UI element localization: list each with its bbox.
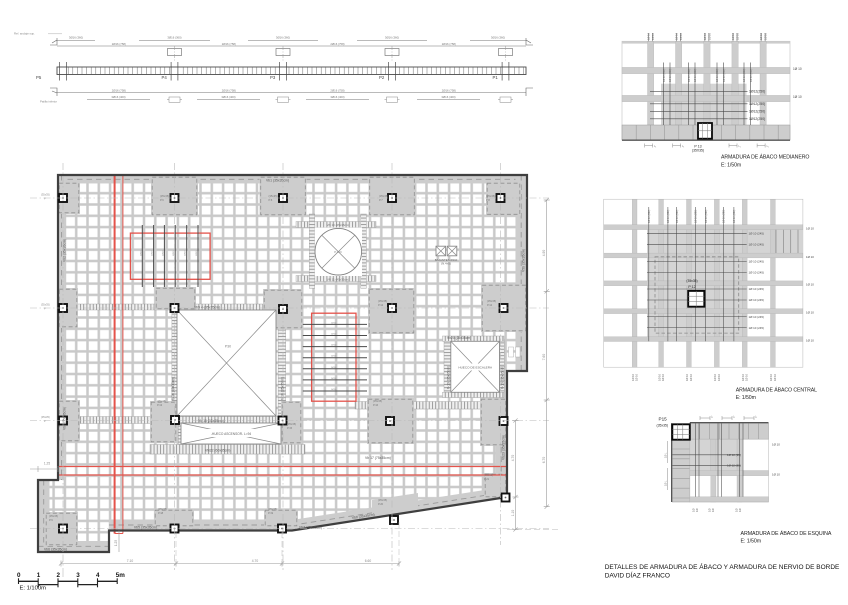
svg-text:1Ø 12 (95): 1Ø 12 (95) bbox=[727, 464, 741, 468]
svg-text:1Ø 12 (95): 1Ø 12 (95) bbox=[727, 453, 741, 457]
svg-text:1Ø10: 1Ø10 bbox=[331, 367, 337, 369]
svg-text:3: 3 bbox=[76, 572, 80, 579]
svg-text:1Ø10: 1Ø10 bbox=[331, 389, 337, 391]
svg-text:1Ø 10: 1Ø 10 bbox=[793, 67, 802, 71]
svg-text:E: 1/100m: E: 1/100m bbox=[20, 585, 47, 591]
svg-text:3Ø16 (400): 3Ø16 (400) bbox=[111, 95, 125, 99]
svg-text:P.160: P.160 bbox=[334, 250, 342, 254]
svg-text:Ref. anclaje sup.: Ref. anclaje sup. bbox=[14, 32, 35, 36]
svg-text:1Ø 10 (250): 1Ø 10 (250) bbox=[723, 68, 726, 82]
svg-text:P.12: P.12 bbox=[487, 303, 493, 307]
svg-text:Vb 17 (75x35cm): Vb 17 (75x35cm) bbox=[365, 456, 391, 460]
svg-text:1.10: 1.10 bbox=[511, 510, 515, 517]
svg-text:(35x35): (35x35) bbox=[378, 498, 387, 502]
svg-text:1Ø 10 (280): 1Ø 10 (280) bbox=[723, 209, 726, 223]
svg-text:1Ø 10: 1Ø 10 bbox=[773, 373, 777, 381]
svg-text:1Ø 10: 1Ø 10 bbox=[772, 443, 780, 447]
svg-text:-HUECO ASCENSOR- L=94: -HUECO ASCENSOR- L=94 bbox=[211, 432, 252, 436]
svg-text:P.21: P.21 bbox=[484, 477, 490, 481]
svg-text:Vb6 (35x35cm): Vb6 (35x35cm) bbox=[44, 547, 67, 551]
svg-text:P.19: P.19 bbox=[268, 511, 274, 515]
svg-text:P15: P15 bbox=[659, 416, 668, 421]
svg-text:(35x35): (35x35) bbox=[486, 194, 495, 198]
svg-text:1Ø 10 (250): 1Ø 10 (250) bbox=[663, 68, 666, 82]
svg-text:L₁: L₁ bbox=[711, 417, 713, 419]
svg-text:(35x35): (35x35) bbox=[487, 299, 496, 303]
svg-text:P.20: P.20 bbox=[378, 502, 384, 506]
svg-text:1Ø 10: 1Ø 10 bbox=[685, 373, 689, 381]
svg-text:1Ø 10: 1Ø 10 bbox=[759, 32, 763, 40]
svg-text:1Ø 10: 1Ø 10 bbox=[793, 95, 802, 99]
svg-text:1Ø10: 1Ø10 bbox=[331, 378, 337, 380]
svg-text:P3: P3 bbox=[270, 75, 276, 80]
svg-text:2Ø16 (758): 2Ø16 (758) bbox=[330, 88, 344, 92]
svg-text:VN 11 (45x35cm): VN 11 (45x35cm) bbox=[327, 277, 349, 281]
svg-text:3Ø16 (360): 3Ø16 (360) bbox=[491, 36, 505, 40]
svg-text:1Ø: 1Ø bbox=[738, 509, 742, 512]
svg-text:7.10: 7.10 bbox=[127, 559, 134, 563]
svg-text:1Ø 10 (280): 1Ø 10 (280) bbox=[695, 209, 698, 223]
svg-text:1Ø 10 (280): 1Ø 10 (280) bbox=[676, 209, 679, 223]
svg-text:(35x35): (35x35) bbox=[157, 399, 166, 403]
svg-text:1Ø: 1Ø bbox=[692, 509, 696, 512]
svg-text:E: 1/50m: E: 1/50m bbox=[721, 162, 741, 168]
svg-text:1Ø 10 (245): 1Ø 10 (245) bbox=[749, 232, 764, 236]
svg-text:1Ø 10: 1Ø 10 bbox=[806, 338, 814, 342]
svg-text:2: 2 bbox=[57, 572, 61, 579]
svg-text:E: 1/50m: E: 1/50m bbox=[741, 539, 762, 545]
svg-text:1Ø 10: 1Ø 10 bbox=[717, 373, 721, 381]
svg-text:(35x35): (35x35) bbox=[484, 473, 493, 477]
svg-text:L₁: L₁ bbox=[733, 417, 735, 419]
svg-text:1Ø 10 (280): 1Ø 10 (280) bbox=[648, 209, 651, 223]
svg-text:P: P bbox=[44, 197, 46, 201]
svg-text:1Ø 10 (245): 1Ø 10 (245) bbox=[749, 271, 764, 275]
svg-text:V-19 (35x35cm): V-19 (35x35cm) bbox=[446, 366, 450, 389]
svg-text:VN22 (60x35cm): VN22 (60x35cm) bbox=[205, 448, 230, 452]
svg-text:P.16: P.16 bbox=[373, 403, 379, 407]
svg-text:(35x35): (35x35) bbox=[41, 303, 50, 307]
svg-text:(35x35): (35x35) bbox=[160, 194, 169, 198]
svg-text:3Ø16 (360): 3Ø16 (360) bbox=[276, 36, 290, 40]
svg-text:1Ø 10: 1Ø 10 bbox=[806, 311, 814, 315]
svg-text:DAVID DÍAZ FRANCO: DAVID DÍAZ FRANCO bbox=[605, 570, 670, 579]
svg-text:Vb9 4-(35x35cm): Vb9 4-(35x35cm) bbox=[194, 306, 220, 310]
svg-text:1Ø 10 (280): 1Ø 10 (280) bbox=[733, 209, 736, 223]
svg-text:2Ø16 (758): 2Ø16 (758) bbox=[442, 42, 456, 46]
svg-text:1Ø 10: 1Ø 10 bbox=[806, 227, 814, 231]
svg-text:1Ø 10 (250): 1Ø 10 (250) bbox=[750, 68, 753, 82]
svg-text:1Ø: 1Ø bbox=[735, 509, 739, 512]
svg-text:VN 10 (45x35cm): VN 10 (45x35cm) bbox=[327, 223, 350, 227]
svg-text:P: P bbox=[44, 307, 46, 311]
svg-text:1Ø 10: 1Ø 10 bbox=[769, 373, 773, 381]
svg-text:Patilla inferior: Patilla inferior bbox=[40, 100, 57, 104]
svg-text:(35x35): (35x35) bbox=[287, 422, 296, 426]
svg-text:1Ø: 1Ø bbox=[695, 509, 699, 512]
svg-text:L₁: L₁ bbox=[755, 417, 757, 419]
svg-text:P5: P5 bbox=[36, 75, 42, 80]
svg-text:4.70: 4.70 bbox=[511, 455, 515, 462]
svg-text:1Ø 10: 1Ø 10 bbox=[661, 373, 665, 381]
svg-text:(35x35): (35x35) bbox=[268, 507, 277, 511]
svg-text:P.12: P.12 bbox=[378, 303, 384, 307]
svg-text:3Ø16 (360): 3Ø16 (360) bbox=[167, 36, 181, 40]
svg-text:1Ø 10 (245): 1Ø 10 (245) bbox=[749, 298, 764, 302]
svg-text:1Ø12(250): 1Ø12(250) bbox=[749, 110, 765, 114]
svg-text:1Ø12(250): 1Ø12(250) bbox=[749, 102, 765, 106]
svg-text:(35X35): (35X35) bbox=[692, 149, 704, 153]
svg-text:(35x35): (35x35) bbox=[379, 194, 388, 198]
svg-text:1Ø 10: 1Ø 10 bbox=[731, 32, 735, 40]
svg-text:1Ø 10: 1Ø 10 bbox=[806, 255, 814, 259]
svg-text:P.6: P.6 bbox=[160, 198, 164, 202]
svg-text:1Ø 10 (250): 1Ø 10 (250) bbox=[669, 68, 672, 82]
svg-text:1Ø10: 1Ø10 bbox=[331, 322, 337, 324]
svg-text:(35x35): (35x35) bbox=[269, 194, 278, 198]
svg-text:P 12: P 12 bbox=[688, 285, 695, 289]
svg-text:L₁: L₁ bbox=[767, 145, 769, 148]
svg-text:ARMADURA DE ÁBACO CENTRAL: ARMADURA DE ÁBACO CENTRAL bbox=[736, 386, 817, 393]
svg-text:1Ø10: 1Ø10 bbox=[185, 250, 187, 256]
svg-text:1Ø 10: 1Ø 10 bbox=[764, 32, 768, 40]
svg-text:1Ø10: 1Ø10 bbox=[331, 334, 337, 336]
svg-text:V5b (35x35cm): V5b (35x35cm) bbox=[522, 249, 526, 272]
svg-text:1Ø L: 1Ø L bbox=[665, 480, 668, 486]
svg-text:ARMADURA DE ÁBACO DE ESQUINA: ARMADURA DE ÁBACO DE ESQUINA bbox=[741, 530, 832, 537]
svg-text:HUECO DE ESCALERA: HUECO DE ESCALERA bbox=[458, 365, 493, 369]
svg-text:P.6: P.6 bbox=[269, 198, 273, 202]
svg-text:3Ø16 (360): 3Ø16 (360) bbox=[385, 36, 399, 40]
svg-text:V-16 (35x35cm): V-16 (35x35cm) bbox=[281, 377, 285, 400]
svg-text:1Ø 10 (245): 1Ø 10 (245) bbox=[749, 287, 764, 291]
svg-text:(35x35): (35x35) bbox=[378, 299, 387, 303]
svg-text:(35x35): (35x35) bbox=[373, 399, 382, 403]
svg-text:L₁: L₁ bbox=[654, 145, 656, 148]
svg-text:1: 1 bbox=[37, 572, 41, 579]
svg-text:(35x35): (35x35) bbox=[686, 279, 697, 283]
svg-text:1Ø10: 1Ø10 bbox=[196, 250, 198, 256]
svg-text:1.25: 1.25 bbox=[44, 462, 50, 466]
svg-text:P.9: P.9 bbox=[49, 518, 53, 522]
svg-text:Vb20 (35x35cm): Vb20 (35x35cm) bbox=[447, 336, 471, 340]
svg-text:Vb1 (35x35cm): Vb1 (35x35cm) bbox=[266, 179, 289, 183]
svg-text:2Ø16 (758): 2Ø16 (758) bbox=[442, 88, 456, 92]
svg-text:1Ø 10: 1Ø 10 bbox=[675, 32, 679, 40]
svg-text:1Ø 10 (250): 1Ø 10 (250) bbox=[743, 68, 746, 82]
svg-text:1Ø12(250): 1Ø12(250) bbox=[749, 90, 765, 94]
svg-text:1Ø 10: 1Ø 10 bbox=[651, 32, 655, 40]
svg-text:1Ø 10 (250): 1Ø 10 (250) bbox=[688, 68, 691, 82]
svg-text:V-19 (35x35cm): V-19 (35x35cm) bbox=[501, 366, 505, 389]
svg-text:1Ø 10: 1Ø 10 bbox=[772, 473, 780, 477]
svg-text:(35x35): (35x35) bbox=[49, 514, 58, 518]
svg-text:1Ø 10 (245): 1Ø 10 (245) bbox=[749, 315, 764, 319]
svg-text:P.90: P.90 bbox=[225, 345, 231, 349]
svg-text:E: 1/50m: E: 1/50m bbox=[736, 395, 756, 401]
svg-text:1Ø 10 (245): 1Ø 10 (245) bbox=[749, 260, 764, 264]
svg-text:ARMADURA DE ÁBACO MEDIANERO: ARMADURA DE ÁBACO MEDIANERO bbox=[721, 154, 809, 161]
svg-text:DETALLES DE ARMADURA DE ÁBACO: DETALLES DE ARMADURA DE ÁBACO Y ARMADURA… bbox=[605, 562, 840, 571]
svg-text:1Ø 10: 1Ø 10 bbox=[657, 373, 661, 381]
svg-text:P4: P4 bbox=[162, 75, 168, 80]
svg-text:1Ø 10: 1Ø 10 bbox=[735, 32, 739, 40]
svg-text:5m: 5m bbox=[116, 572, 126, 579]
svg-text:L₁: L₁ bbox=[739, 145, 741, 148]
svg-text:2Ø16 (758): 2Ø16 (758) bbox=[330, 42, 344, 46]
svg-text:1Ø 10: 1Ø 10 bbox=[635, 373, 639, 381]
svg-text:7.60: 7.60 bbox=[542, 354, 546, 361]
svg-text:1Ø 10: 1Ø 10 bbox=[679, 32, 683, 40]
svg-text:P.7: P.7 bbox=[379, 198, 383, 202]
svg-text:4.70: 4.70 bbox=[252, 559, 259, 563]
svg-text:1Ø 10 (245): 1Ø 10 (245) bbox=[749, 243, 764, 247]
svg-text:1Ø 10: 1Ø 10 bbox=[741, 373, 745, 381]
svg-text:(35x35): (35x35) bbox=[158, 507, 167, 511]
svg-text:P.15: P.15 bbox=[287, 426, 293, 430]
svg-text:2Ø16 (758): 2Ø16 (758) bbox=[112, 42, 126, 46]
svg-text:1Ø 10: 1Ø 10 bbox=[713, 373, 717, 381]
svg-text:L₁: L₁ bbox=[682, 145, 684, 148]
svg-text:1Ø 10 (250): 1Ø 10 (250) bbox=[694, 68, 697, 82]
svg-text:4: 4 bbox=[96, 572, 100, 579]
svg-text:1Ø 10: 1Ø 10 bbox=[631, 373, 635, 381]
svg-text:3Ø16 (400): 3Ø16 (400) bbox=[330, 95, 344, 99]
svg-text:(N.4+5): (N.4+5) bbox=[441, 262, 451, 266]
svg-text:1.25: 1.25 bbox=[114, 540, 118, 546]
svg-text:1Ø10: 1Ø10 bbox=[140, 250, 142, 256]
svg-text:1Ø10: 1Ø10 bbox=[331, 345, 337, 347]
svg-text:3Ø16 (400): 3Ø16 (400) bbox=[441, 95, 455, 99]
svg-text:1Ø 10: 1Ø 10 bbox=[689, 373, 693, 381]
svg-text:1Ø 10: 1Ø 10 bbox=[806, 283, 814, 287]
svg-text:P.13: P.13 bbox=[157, 403, 163, 407]
svg-text:1Ø 10 (245): 1Ø 10 (245) bbox=[749, 326, 764, 330]
svg-text:P2: P2 bbox=[379, 75, 385, 80]
svg-text:2Ø16 (758): 2Ø16 (758) bbox=[222, 88, 236, 92]
svg-text:P.18: P.18 bbox=[158, 511, 164, 515]
svg-text:1Ø 10: 1Ø 10 bbox=[707, 32, 711, 40]
svg-text:1Ø12(250): 1Ø12(250) bbox=[749, 117, 765, 121]
svg-text:1Ø 10: 1Ø 10 bbox=[647, 32, 651, 40]
svg-text:1Ø10: 1Ø10 bbox=[331, 356, 337, 358]
svg-text:Vb23 (35x35cm): Vb23 (35x35cm) bbox=[502, 435, 506, 460]
svg-text:1Ø10: 1Ø10 bbox=[152, 250, 154, 256]
svg-text:6.60: 6.60 bbox=[365, 559, 372, 563]
svg-text:3Ø16 (360): 3Ø16 (360) bbox=[69, 36, 83, 40]
svg-text:6.70: 6.70 bbox=[542, 457, 546, 464]
svg-text:1Ø L: 1Ø L bbox=[665, 452, 668, 458]
svg-text:1Ø: 1Ø bbox=[707, 509, 711, 512]
svg-text:1Ø 10 (280): 1Ø 10 (280) bbox=[705, 209, 708, 223]
svg-text:P.8: P.8 bbox=[486, 198, 490, 202]
svg-text:1Ø: 1Ø bbox=[711, 509, 715, 512]
svg-text:1Ø 10 (280): 1Ø 10 (280) bbox=[667, 209, 670, 223]
svg-text:P 13: P 13 bbox=[694, 144, 701, 148]
svg-text:P1: P1 bbox=[493, 75, 499, 80]
svg-text:(35x35): (35x35) bbox=[41, 193, 50, 197]
svg-text:2Ø16 (758): 2Ø16 (758) bbox=[222, 42, 236, 46]
svg-text:1Ø10: 1Ø10 bbox=[162, 250, 164, 256]
svg-text:4.90: 4.90 bbox=[542, 250, 546, 257]
svg-text:0: 0 bbox=[17, 572, 21, 579]
svg-text:1Ø 10: 1Ø 10 bbox=[745, 373, 749, 381]
svg-text:(35x35): (35x35) bbox=[41, 415, 50, 419]
svg-text:(35x35): (35x35) bbox=[657, 423, 669, 427]
svg-text:3Ø16 (400): 3Ø16 (400) bbox=[221, 95, 235, 99]
svg-text:P: P bbox=[44, 419, 46, 423]
svg-text:2Ø16 (758): 2Ø16 (758) bbox=[112, 88, 126, 92]
svg-text:1Ø 10: 1Ø 10 bbox=[703, 32, 707, 40]
svg-text:1Ø 10 (250): 1Ø 10 (250) bbox=[716, 68, 719, 82]
